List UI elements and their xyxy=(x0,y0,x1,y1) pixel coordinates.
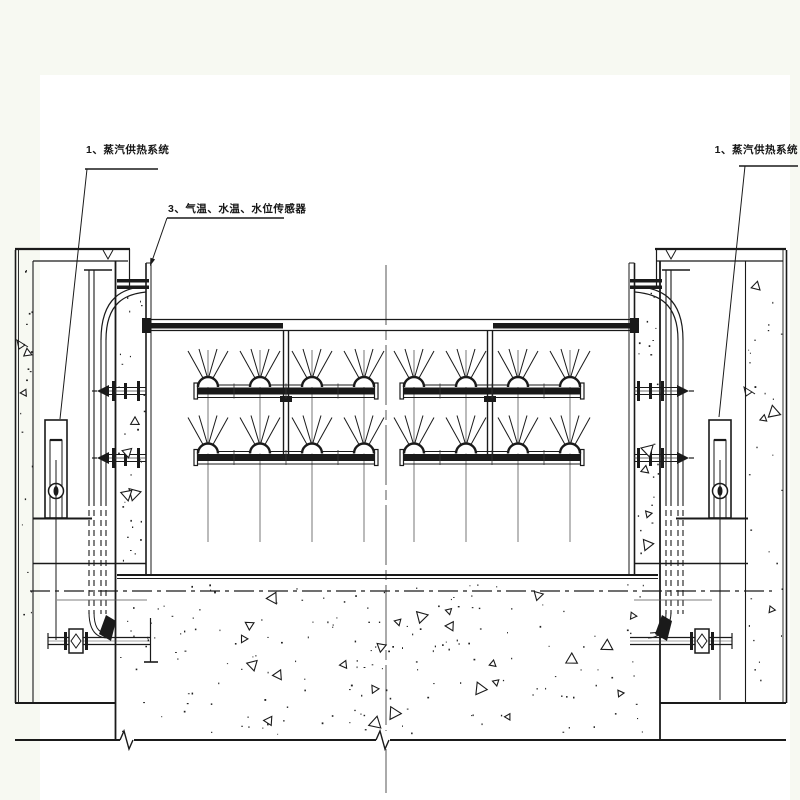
leader-line-steam-left xyxy=(60,169,87,419)
stipple-dot xyxy=(639,353,640,354)
stipple-dot xyxy=(235,643,237,645)
nozzle-arch xyxy=(198,377,218,387)
stipple-dot xyxy=(630,633,631,634)
pipe-coupling xyxy=(484,396,496,402)
stipple-dot xyxy=(308,637,309,639)
stipple-dot xyxy=(135,553,136,555)
stipple-dot xyxy=(268,672,269,674)
stipple-dot xyxy=(127,297,128,299)
texture-triangle xyxy=(247,661,257,671)
stipple-dot xyxy=(392,646,394,648)
stipple-dot xyxy=(209,584,211,586)
stipple-dot xyxy=(643,585,644,587)
stipple-dot xyxy=(23,344,25,345)
annotations: 1、蒸汽供热系统 3、气温、水温、水位传感器 1、蒸汽供热系统 xyxy=(60,143,798,419)
stipple-dot xyxy=(417,669,418,670)
texture-triangle xyxy=(131,417,140,425)
stipple-dot xyxy=(749,625,750,627)
wall-penetration xyxy=(630,318,639,333)
bolt-arrow-icon xyxy=(97,452,109,464)
margin-left xyxy=(0,0,40,800)
stipple-dot xyxy=(507,632,508,633)
stipple-dot xyxy=(304,679,305,680)
stipple-dot xyxy=(218,683,219,685)
stipple-dot xyxy=(772,455,773,456)
stipple-dot xyxy=(355,595,357,597)
stipple-dot xyxy=(354,710,355,711)
stipple-dot xyxy=(241,669,243,670)
texture-triangle xyxy=(390,707,401,720)
stipple-dot xyxy=(473,714,474,716)
stipple-dot xyxy=(433,683,434,684)
stipple-dot xyxy=(479,608,481,609)
stipple-dot xyxy=(297,588,298,590)
stipple-dot xyxy=(32,311,33,313)
flange-plate xyxy=(137,381,140,401)
stipple-dot xyxy=(446,642,447,643)
stipple-dot xyxy=(566,696,568,698)
stipple-dot xyxy=(130,356,131,357)
stipple-dot xyxy=(175,652,177,653)
stipple-dot xyxy=(130,550,132,551)
stipple-dot xyxy=(390,698,392,700)
stipple-dot xyxy=(754,340,756,341)
stipple-dot xyxy=(211,732,212,733)
margin-top xyxy=(0,0,800,75)
texture-triangle xyxy=(489,660,496,666)
stipple-dot xyxy=(460,682,461,684)
stipple-dot xyxy=(638,323,639,324)
stipple-dot xyxy=(636,704,638,705)
stipple-dot xyxy=(357,660,358,662)
leader-line-steam-right xyxy=(719,166,745,417)
flange-plate xyxy=(112,448,115,468)
stipple-dot xyxy=(433,650,434,652)
stipple-dot xyxy=(364,667,366,668)
stipple-dot xyxy=(442,644,444,646)
texture-triangle xyxy=(445,622,453,631)
stipple-dot xyxy=(411,733,413,735)
stipple-dot xyxy=(332,627,333,628)
stipple-dot xyxy=(210,590,211,591)
stipple-dot xyxy=(471,596,472,597)
stipple-dot xyxy=(651,293,652,294)
stipple-dot xyxy=(749,362,751,363)
wall-seal xyxy=(117,279,149,283)
stipple-dot xyxy=(367,608,368,609)
stipple-dot xyxy=(304,690,306,692)
stipple-dot xyxy=(458,606,460,607)
texture-triangle xyxy=(273,670,282,680)
stipple-dot xyxy=(594,636,595,637)
nozzle-arch xyxy=(250,444,270,454)
texture-triangle xyxy=(121,490,132,501)
stipple-dot xyxy=(247,717,248,718)
stipple-dot xyxy=(140,301,141,303)
nozzle-arch xyxy=(354,444,374,454)
stipple-dot xyxy=(137,429,139,431)
stipple-dot xyxy=(355,641,356,643)
stipple-dot xyxy=(214,592,216,594)
stipple-dot xyxy=(615,713,617,715)
stipple-dot xyxy=(22,524,23,525)
stipple-dot xyxy=(312,622,313,623)
stipple-dot xyxy=(31,351,33,353)
texture-triangle xyxy=(646,511,653,518)
stipple-dot xyxy=(640,530,641,531)
stipple-dot xyxy=(549,646,550,647)
texture-triangle xyxy=(643,540,653,551)
stipple-dot xyxy=(365,729,367,730)
stipple-dot xyxy=(750,353,751,354)
stipple-dot xyxy=(180,633,181,634)
header-pipe xyxy=(493,323,630,329)
stipple-dot xyxy=(118,387,120,388)
nozzle-arch xyxy=(560,377,580,387)
stipple-dot xyxy=(598,669,599,670)
stipple-dot xyxy=(31,591,32,592)
stipple-dot xyxy=(241,726,242,727)
stipple-dot xyxy=(451,599,452,600)
stipple-dot xyxy=(118,453,120,455)
stipple-dot xyxy=(22,432,24,433)
stipple-dot xyxy=(262,728,263,729)
stipple-dot xyxy=(136,669,138,671)
stipple-dot xyxy=(141,521,142,523)
stipple-dot xyxy=(277,734,278,735)
stipple-dot xyxy=(287,707,288,708)
flange-plate xyxy=(661,381,664,401)
stipple-dot xyxy=(130,474,131,475)
stipple-dot xyxy=(755,386,757,388)
stipple-dot xyxy=(402,647,403,649)
stipple-dot xyxy=(532,695,534,696)
stipple-dot xyxy=(768,330,769,331)
nozzle-arch xyxy=(198,444,218,454)
stipple-dot xyxy=(657,464,658,466)
stipple-dot xyxy=(141,461,142,463)
stipple-dot xyxy=(561,696,562,697)
stipple-dot xyxy=(750,530,752,531)
stipple-dot xyxy=(511,658,512,660)
stipple-dot xyxy=(627,630,629,632)
stipple-dot xyxy=(364,715,366,716)
flange-plate xyxy=(64,632,67,650)
stipple-dot xyxy=(632,661,633,662)
stipple-dot xyxy=(281,642,283,644)
stipple-dot xyxy=(754,669,756,670)
stipple-dot xyxy=(759,662,760,663)
stipple-dot xyxy=(145,646,147,648)
stipple-dot xyxy=(172,616,174,617)
stipple-dot xyxy=(248,726,249,728)
stipple-dot xyxy=(361,695,362,697)
stipple-dot xyxy=(158,608,159,610)
stipple-dot xyxy=(333,625,335,626)
stipple-dot xyxy=(124,502,125,503)
stipple-dot xyxy=(124,434,126,435)
stipple-dot xyxy=(161,716,162,717)
flange-plate xyxy=(690,632,693,650)
stipple-dot xyxy=(148,639,149,641)
stipple-dot xyxy=(573,697,575,699)
stipple-dot xyxy=(129,311,130,313)
stipple-dot xyxy=(26,270,27,272)
stipple-dot xyxy=(141,305,143,306)
texture-triangle xyxy=(394,619,401,626)
stipple-dot xyxy=(652,523,654,524)
label-steam-system-right: 1、蒸汽供热系统 xyxy=(715,143,798,156)
stipple-dot xyxy=(594,726,595,728)
stipple-dot xyxy=(781,334,783,335)
texture-triangle xyxy=(505,714,510,720)
stipple-dot xyxy=(28,368,30,370)
stipple-dot xyxy=(193,618,194,619)
stipple-dot xyxy=(360,714,361,715)
stipple-dot xyxy=(427,697,429,699)
stipple-dot xyxy=(471,715,472,716)
leader-line-sensors xyxy=(152,218,167,261)
stipple-dot xyxy=(468,643,470,645)
texture-triangle xyxy=(369,716,381,728)
stipple-dot xyxy=(640,553,642,555)
flange-plate xyxy=(124,383,127,399)
stipple-dot xyxy=(127,537,129,538)
stipple-dot xyxy=(642,732,643,733)
stipple-dot xyxy=(596,685,597,687)
stipple-dot xyxy=(407,709,409,710)
stipple-dot xyxy=(652,340,654,341)
stipple-dot xyxy=(384,592,385,593)
texture-triangle xyxy=(242,635,248,643)
stipple-dot xyxy=(344,601,346,603)
stipple-dot xyxy=(191,586,193,588)
nozzle-arch xyxy=(404,444,424,454)
label-steam-system-left: 1、蒸汽供热系统 xyxy=(86,143,169,156)
stipple-dot xyxy=(144,394,146,396)
stipple-dot xyxy=(371,650,372,651)
stipple-dot xyxy=(782,588,784,590)
stipple-dot xyxy=(654,296,656,297)
stipple-dot xyxy=(637,718,638,719)
stipple-dot xyxy=(154,637,155,638)
stipple-dot xyxy=(760,680,761,682)
stipple-dot xyxy=(30,371,32,372)
stipple-dot xyxy=(150,623,151,624)
stipple-dot xyxy=(261,620,263,621)
stipple-dot xyxy=(255,655,256,656)
stipple-dot xyxy=(653,476,654,477)
bend-pipe xyxy=(106,292,146,340)
texture-triangle xyxy=(340,661,347,669)
texture-triangle xyxy=(377,644,386,653)
stipple-dot xyxy=(184,711,186,713)
texture-triangle xyxy=(768,405,780,417)
stipple-dot xyxy=(27,572,29,573)
stipple-dot xyxy=(349,722,350,723)
nozzle-arch xyxy=(508,444,528,454)
stipple-dot xyxy=(511,608,512,610)
flange-plate xyxy=(649,383,652,399)
texture-triangle xyxy=(641,466,649,473)
stipple-dot xyxy=(130,520,132,522)
texture-triangle xyxy=(631,612,637,619)
stipple-dot xyxy=(357,666,358,668)
stipple-dot xyxy=(781,635,782,637)
stipple-dot xyxy=(753,640,754,641)
stipple-dot xyxy=(639,342,641,344)
stipple-dot xyxy=(220,630,221,632)
stipple-dot xyxy=(120,657,121,658)
stipple-dot xyxy=(477,584,478,586)
texture-triangle xyxy=(493,680,499,686)
texture-triangle xyxy=(618,690,624,697)
stipple-dot xyxy=(638,515,639,517)
stipple-dot xyxy=(295,661,296,663)
stipple-dot xyxy=(458,644,460,645)
stipple-dot xyxy=(29,313,31,315)
stipple-dot xyxy=(267,637,268,638)
stipple-dot xyxy=(26,380,28,382)
stipple-dot xyxy=(185,651,187,652)
stipple-dot xyxy=(132,527,133,529)
nozzle-arch xyxy=(456,444,476,454)
texture-triangle xyxy=(751,281,760,290)
stipple-dot xyxy=(140,539,142,541)
texture-triangle xyxy=(122,449,132,458)
stipple-dot xyxy=(133,607,135,609)
flange-plate xyxy=(112,381,115,401)
texture-triangle xyxy=(266,592,276,603)
stipple-dot xyxy=(375,646,376,648)
texture-triangle xyxy=(245,622,254,630)
stipple-dot xyxy=(264,699,266,701)
stipple-dot xyxy=(127,621,128,622)
stipple-dot xyxy=(555,676,556,677)
stipple-dot xyxy=(164,606,165,607)
stipple-dot xyxy=(144,411,146,413)
stipple-dot xyxy=(302,600,304,601)
stipple-dot xyxy=(756,447,757,449)
nozzle-arch xyxy=(250,377,270,387)
stipple-dot xyxy=(252,656,253,657)
nozzle-arch xyxy=(508,377,528,387)
stipple-dot xyxy=(474,659,476,661)
stipple-dot xyxy=(130,631,132,632)
stipple-dot xyxy=(765,393,766,395)
stipple-dot xyxy=(657,384,659,386)
stipple-dot xyxy=(122,506,124,508)
stipple-dot xyxy=(472,607,474,608)
stipple-dot xyxy=(654,497,655,499)
nozzle-arch xyxy=(302,377,322,387)
stipple-dot xyxy=(211,703,213,705)
stipple-dot xyxy=(372,664,374,665)
leader-arrowhead-icon xyxy=(150,258,155,266)
stipple-dot xyxy=(283,720,285,721)
texture-triangle xyxy=(760,415,767,421)
flange-plate xyxy=(85,632,88,650)
stipple-dot xyxy=(781,490,782,491)
nozzle-arch xyxy=(354,377,374,387)
stipple-dot xyxy=(772,302,773,304)
stipple-dot xyxy=(658,473,660,475)
stipple-dot xyxy=(133,636,135,637)
stipple-dot xyxy=(177,659,178,660)
stipple-dot xyxy=(199,609,200,610)
texture-triangle xyxy=(566,653,578,663)
stipple-dot xyxy=(647,321,648,323)
stipple-dot xyxy=(649,345,651,347)
stipple-dot xyxy=(31,612,32,613)
stipple-dot xyxy=(537,688,538,690)
stipple-dot xyxy=(140,459,141,461)
stipple-dot xyxy=(227,663,228,664)
stipple-dot xyxy=(349,689,351,690)
stipple-dot xyxy=(470,585,471,586)
stipple-dot xyxy=(20,413,21,414)
stipple-dot xyxy=(388,651,390,653)
stipple-dot xyxy=(143,702,145,703)
stipple-dot xyxy=(545,688,546,690)
stipple-dot xyxy=(122,731,124,732)
level-mark-icon xyxy=(103,250,113,259)
stipple-dot xyxy=(480,628,482,629)
stipple-dot xyxy=(634,675,635,676)
wall-penetration xyxy=(142,318,151,333)
nozzle-arch xyxy=(302,444,322,454)
stipple-dot xyxy=(769,551,770,552)
stipple-dot xyxy=(416,661,418,662)
stipple-dot xyxy=(323,598,324,599)
stipple-dot xyxy=(188,693,190,694)
margin-right xyxy=(790,0,800,800)
nozzle-arch xyxy=(456,377,476,387)
level-mark-icon xyxy=(666,250,676,259)
header-pipe xyxy=(151,323,283,329)
stipple-dot xyxy=(412,634,413,636)
texture-triangle xyxy=(601,639,613,649)
stipple-dot xyxy=(563,732,565,733)
stipple-dot xyxy=(482,723,483,725)
stipple-dot xyxy=(501,715,502,717)
stipple-dot xyxy=(32,466,33,468)
stipple-dot xyxy=(627,584,628,585)
stipple-dot xyxy=(123,560,124,562)
label-sensors: 3、气温、水温、水位传感器 xyxy=(168,202,306,215)
section-drawing xyxy=(15,249,787,793)
section-drawing-canvas: 1、蒸汽供热系统 3、气温、水温、水位传感器 1、蒸汽供热系统 xyxy=(0,0,800,800)
stipple-dot xyxy=(583,646,584,648)
stipple-dot xyxy=(650,354,652,355)
stipple-dot xyxy=(563,611,564,612)
stipple-dot xyxy=(407,626,408,627)
stipple-dot xyxy=(192,693,194,695)
texture-triangle xyxy=(769,606,775,613)
flange-plate xyxy=(711,632,714,650)
flange-plate xyxy=(637,381,640,401)
bolt-arrow-icon xyxy=(97,385,109,397)
stipple-dot xyxy=(23,614,25,616)
stipple-dot xyxy=(368,622,370,623)
stipple-dot xyxy=(496,586,497,587)
stipple-dot xyxy=(26,324,28,325)
stipple-dot xyxy=(655,328,656,329)
stipple-dot xyxy=(351,685,353,687)
wall-seal xyxy=(630,279,662,283)
stipple-dot xyxy=(651,505,652,506)
stipple-dot xyxy=(147,637,148,639)
